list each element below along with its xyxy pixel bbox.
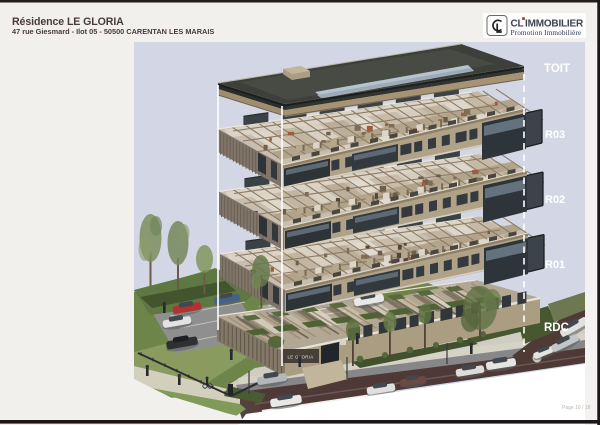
svg-text:R03: R03 [545,129,565,141]
svg-text:TOIT: TOIT [544,63,570,75]
svg-text:47 rue Giesmard - Ilot 05 - 50: 47 rue Giesmard - Ilot 05 - 50500 CARENT… [12,27,214,36]
svg-text:R01: R01 [545,259,565,271]
svg-text:R02: R02 [545,194,565,206]
svg-text:Page 16 / 18: Page 16 / 18 [562,405,591,411]
svg-text:RDC: RDC [544,322,569,334]
svg-text:Promotion Immobilière: Promotion Immobilière [511,29,582,37]
